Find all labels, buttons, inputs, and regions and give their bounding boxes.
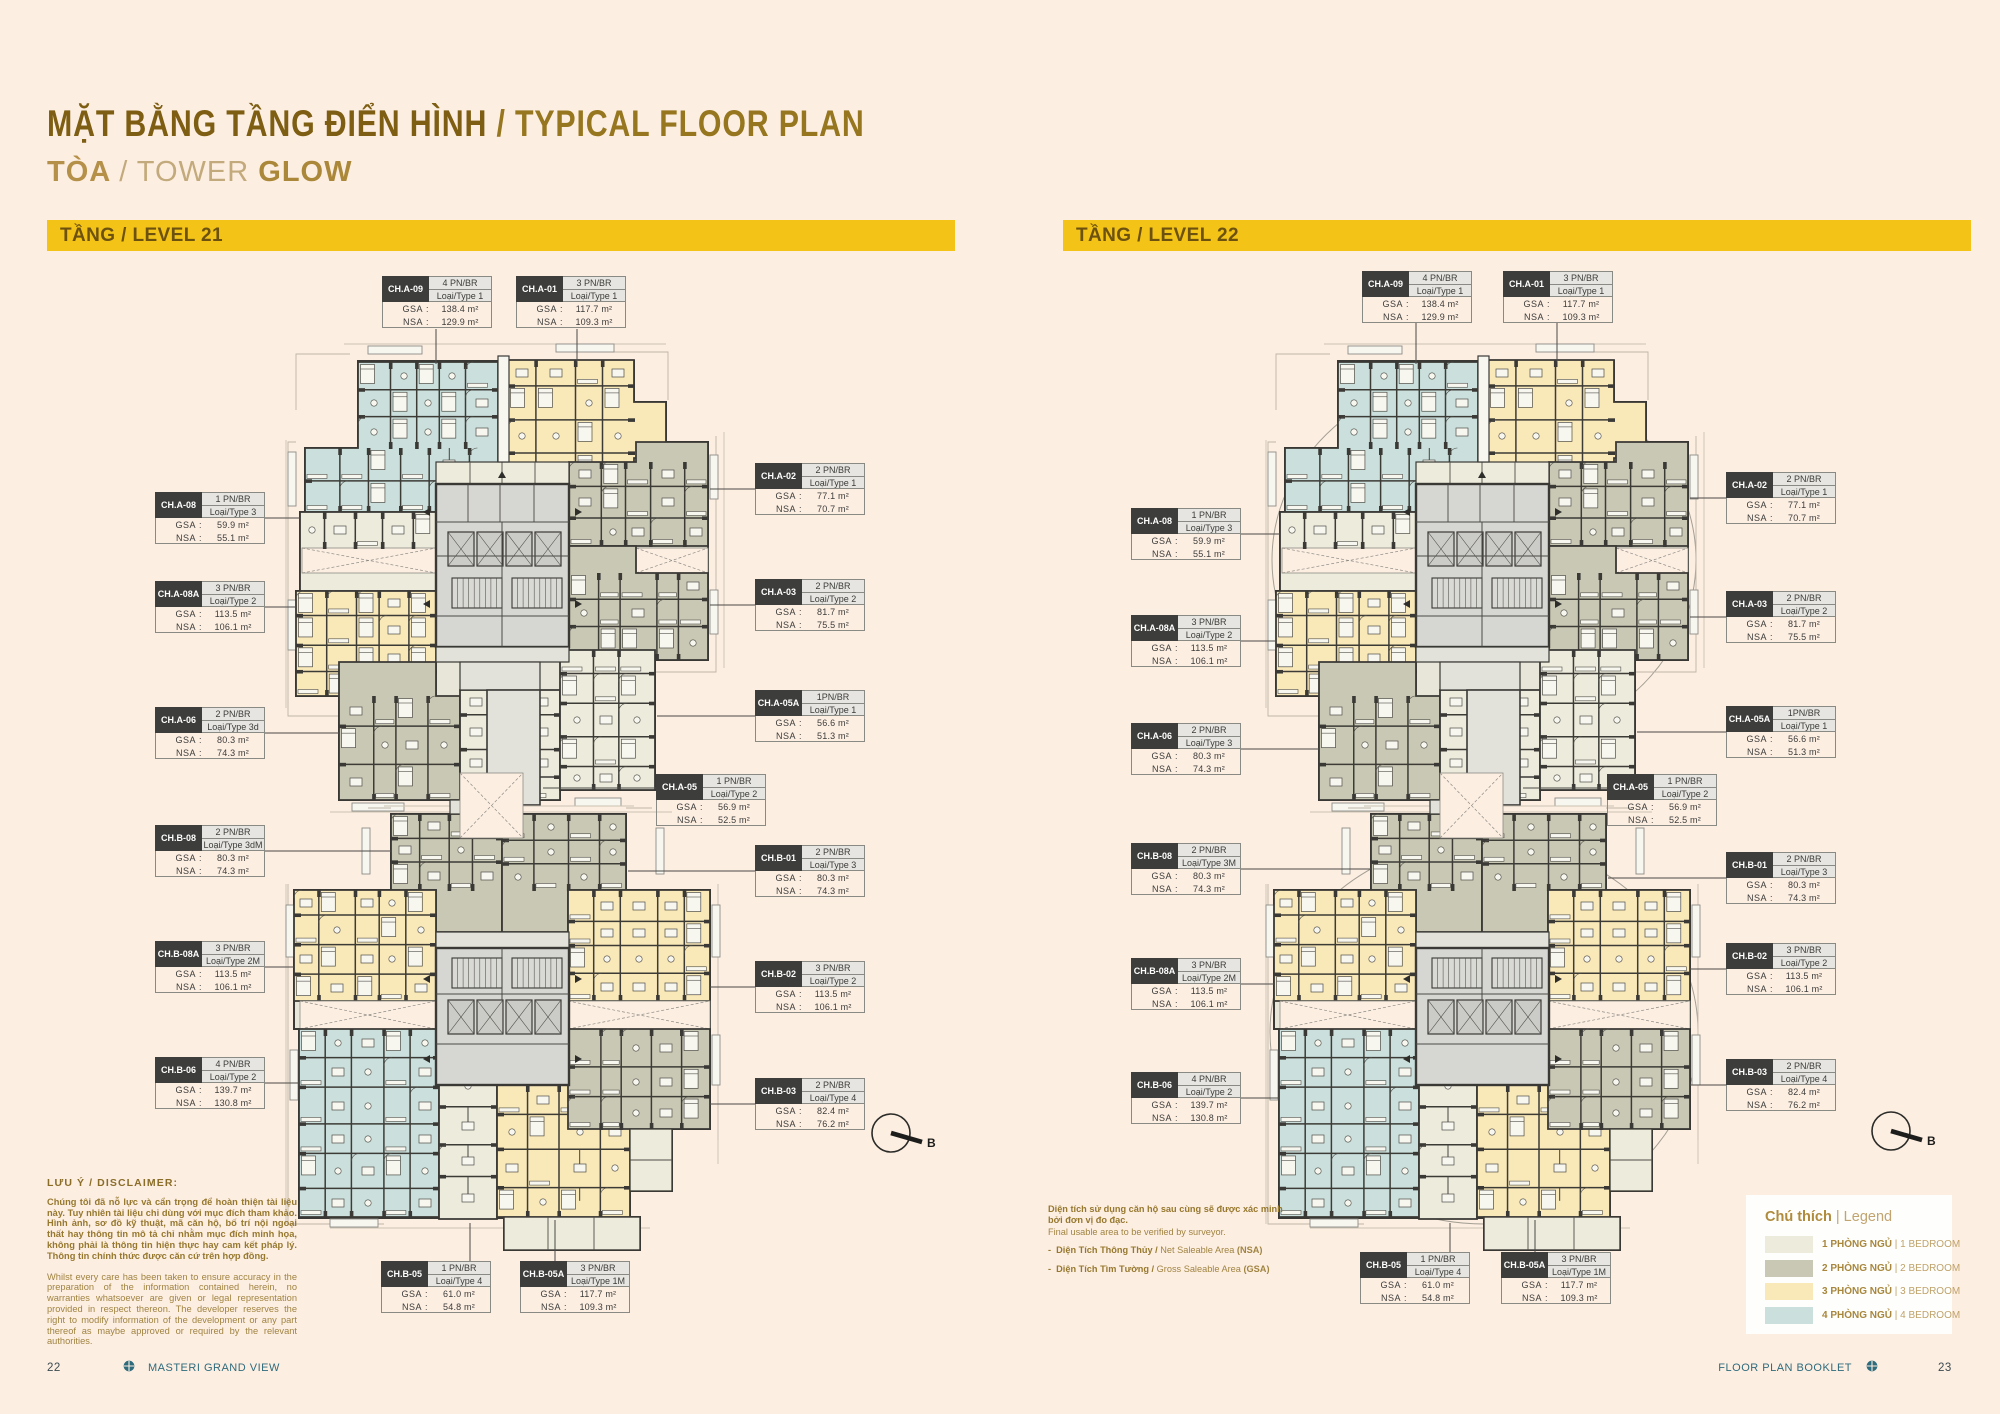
svg-text:B: B: [927, 1136, 936, 1150]
svg-text:B: B: [1927, 1134, 1936, 1148]
